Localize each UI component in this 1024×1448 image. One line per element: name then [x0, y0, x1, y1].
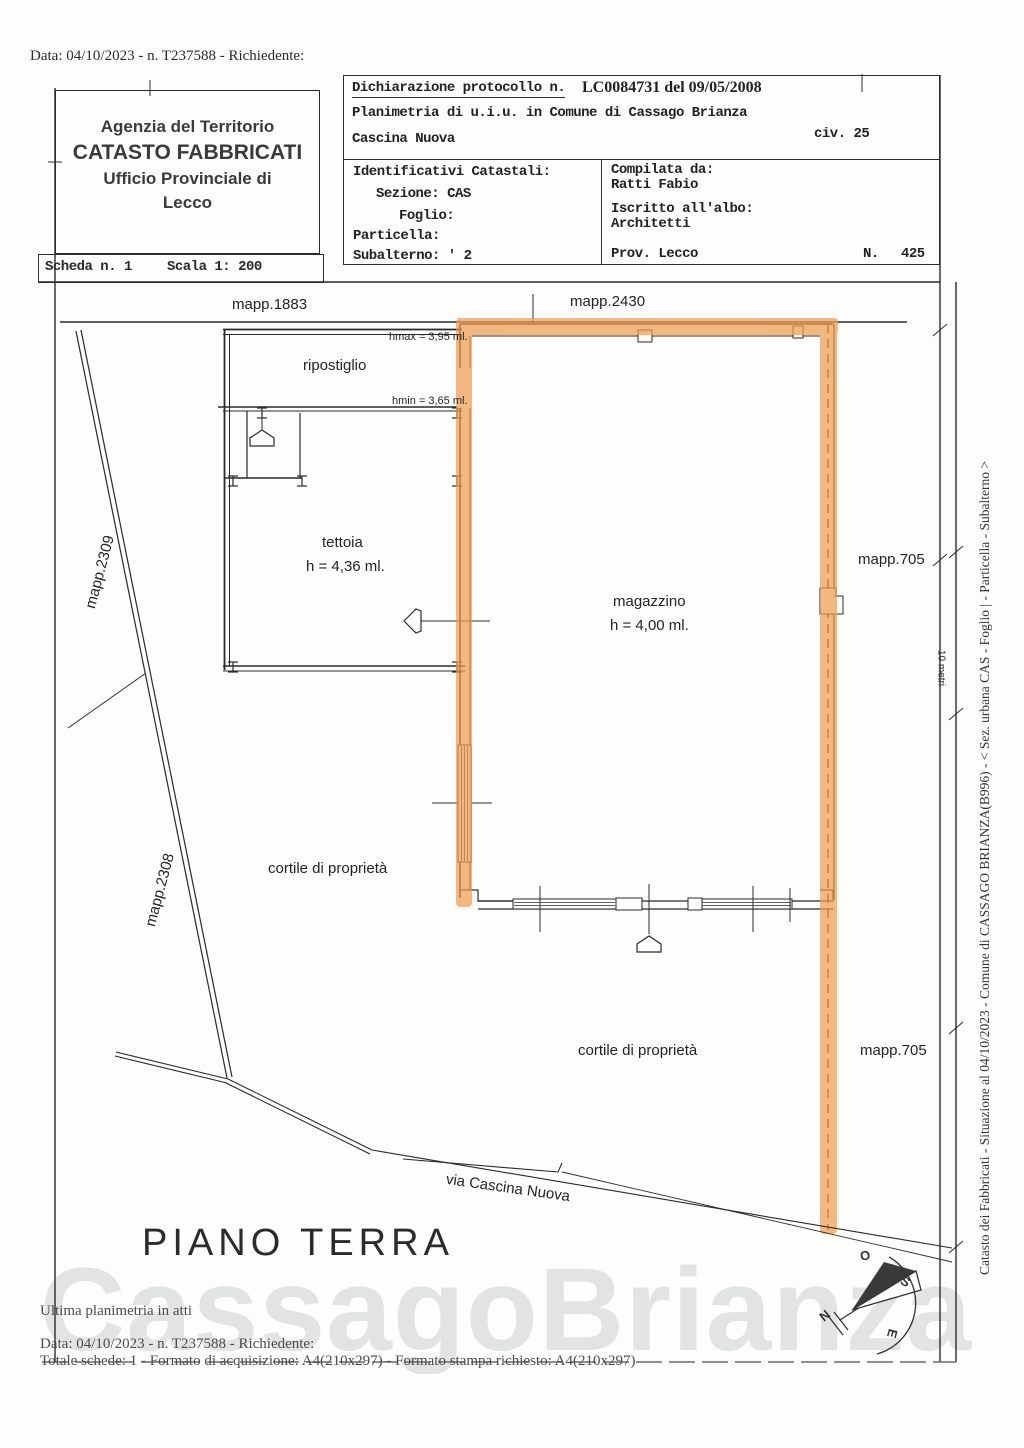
- magazzino-structure: [457, 324, 843, 1230]
- foglio-field: Foglio:: [399, 208, 454, 224]
- protocol-label: Dichiarazione protocollo n.: [352, 80, 565, 98]
- declaration-divider-horizontal: [344, 159, 939, 160]
- declaration-divider-vertical: [601, 159, 602, 264]
- albo-valore: Architetti: [611, 216, 690, 232]
- compass-rose: [829, 1257, 921, 1354]
- n-valore: 425: [901, 246, 925, 262]
- office-city: Lecco: [56, 193, 319, 213]
- declaration-box: Dichiarazione protocollo n. LC0084731 de…: [343, 75, 940, 265]
- civico-value: civ. 25: [814, 126, 869, 142]
- label-mapp-1883: mapp.1883: [232, 296, 307, 313]
- localita-line: Cascina Nuova: [352, 131, 455, 147]
- agency-name: Agenzia del Territorio: [56, 117, 319, 137]
- footer-data-line: Data: 04/10/2023 - n. T237588 - Richiede…: [40, 1336, 314, 1353]
- n-label: N.: [863, 246, 879, 262]
- agency-header-box: Agenzia del Territorio CATASTO FABBRICAT…: [55, 90, 320, 254]
- label-tettoia: tettoia: [322, 534, 363, 551]
- label-mapp-705-upper: mapp.705: [858, 551, 925, 568]
- label-cortile-upper: cortile di proprietà: [268, 860, 387, 877]
- highlight-marker-strokes: [456, 318, 838, 1234]
- label-mapp-705-lower: mapp.705: [860, 1042, 927, 1059]
- label-scale-10-metri: 10 metri: [936, 650, 947, 686]
- parcel-boundaries: [60, 294, 907, 1078]
- label-tettoia-height: h = 4,36 ml.: [306, 558, 385, 575]
- scheda-bar: Scheda n. 1 Scala 1: 200: [38, 254, 324, 283]
- protocol-value: LC0084731 del 09/05/2008: [582, 79, 762, 97]
- catasto-title: CATASTO FABBRICATI: [56, 141, 319, 165]
- label-magazzino-height: h = 4,00 ml.: [610, 617, 689, 634]
- identificativi-title: Identificativi Catastali:: [353, 164, 551, 180]
- label-hmin: hmin = 3,65 ml.: [392, 395, 468, 407]
- sezione-field: Sezione: CAS: [376, 186, 471, 202]
- compilata-label: Compilata da:: [611, 162, 714, 178]
- right-margin-caption: Catasto dei Fabbricati - Situazione al 0…: [977, 461, 993, 1275]
- label-magazzino: magazzino: [613, 593, 686, 610]
- albo-label: Iscritto all'albo:: [611, 201, 753, 217]
- particella-field: Particella:: [353, 228, 440, 244]
- footer-totale-schede: Totale schede: 1 - Formato di acquisizio…: [40, 1353, 636, 1370]
- label-ripostiglio: ripostiglio: [303, 357, 366, 374]
- scan-date-line: Data: 04/10/2023 - n. T237588 - Richiede…: [30, 48, 304, 65]
- footer-ultima-planimetria: Ultima planimetria in atti: [40, 1303, 192, 1320]
- scala-value: Scala 1: 200: [167, 259, 262, 275]
- label-cortile-lower: cortile di proprietà: [578, 1042, 697, 1059]
- scheda-number: Scheda n. 1: [45, 259, 132, 275]
- office-line: Ufficio Provinciale di: [56, 169, 319, 189]
- compilata-nome: Ratti Fabio: [611, 177, 698, 193]
- label-piano-terra: PIANO TERRA: [142, 1222, 454, 1265]
- label-mapp-2430: mapp.2430: [570, 293, 645, 310]
- subalterno-field: Subalterno: ' 2: [353, 248, 472, 264]
- cadastral-plan-page: CassagoBrianza Data: 04/10/2023 - n. T23…: [0, 0, 1024, 1448]
- label-hmax: hmax = 3,95 ml.: [389, 331, 468, 343]
- planimetria-line: Planimetria di u.i.u. in Comune di Cassa…: [352, 105, 747, 121]
- prov-field: Prov. Lecco: [611, 246, 698, 262]
